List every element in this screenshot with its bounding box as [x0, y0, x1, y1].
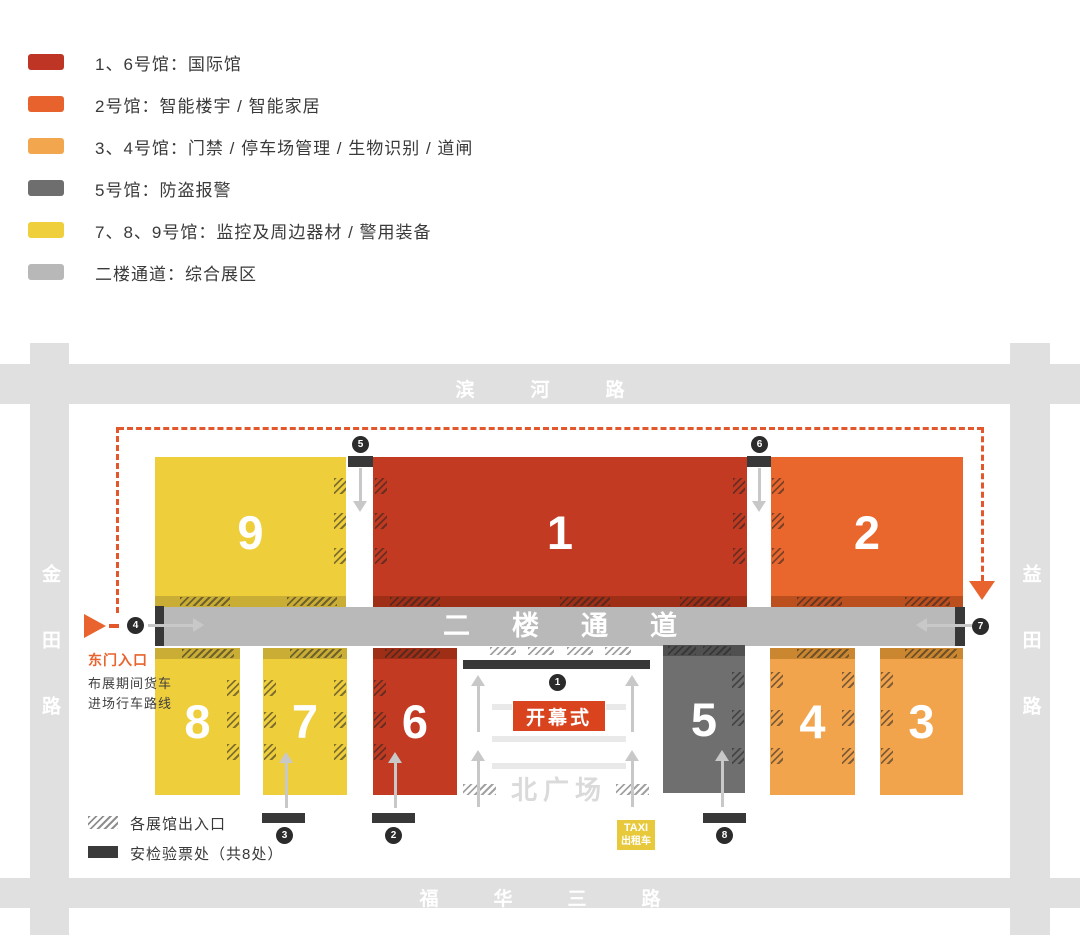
hall-entrance-hatch-mark: [680, 597, 730, 606]
hall-5-number: 5: [691, 696, 717, 743]
road-jintian-label: 金田路: [30, 343, 69, 935]
checkpoint-marker-5: 5: [352, 436, 369, 453]
hall-entrance-hatch-mark: [842, 710, 854, 726]
hall-entrance-hatch-mark: [227, 680, 239, 696]
hall-entrance-hatch-mark: [264, 712, 276, 728]
road-yitian-label: 益田路: [1010, 343, 1050, 935]
hall-entrance-hatch-mark: [905, 649, 957, 658]
checkpoint-marker-1: 1: [549, 674, 566, 691]
hall-entrance-hatch-mark: [374, 744, 386, 760]
second-floor-corridor: 二楼通道: [155, 607, 965, 646]
hall-entrance-hatch-mark: [375, 513, 387, 529]
legend-swatch: [28, 54, 64, 70]
hall-entrance-hatch-mark: [375, 478, 387, 494]
checkpoint-marker-4: 4: [127, 617, 144, 634]
plaza-line: [606, 704, 626, 710]
flow-arrow-down-icon: [353, 468, 367, 512]
security-checkpoint-bar-8: [703, 813, 746, 823]
hall-entrance-hatch-mark: [334, 478, 346, 494]
entrance-hatch-swatch: [88, 816, 118, 829]
checkpoint-marker-7: 7: [972, 618, 989, 635]
taxi-label-cn: 出租车: [621, 836, 651, 848]
hall-entrance-hatch-mark: [797, 597, 842, 606]
hall-entrance-hatch-mark: [528, 647, 554, 655]
flow-arrow-up-icon: [471, 675, 485, 732]
hall-entrance-hatch-mark: [182, 649, 234, 658]
hall-entrance-hatch-mark: [733, 548, 745, 564]
checkpoint-marker-6: 6: [751, 436, 768, 453]
hall-entrance-hatch-mark: [375, 548, 387, 564]
security-checkpoint-bar-3: [262, 813, 305, 823]
entrance-legend-label: 各展馆出入口: [130, 813, 226, 834]
hall-entrance-hatch-mark: [732, 710, 744, 726]
truck-route-left: [116, 427, 119, 613]
hall-entrance-hatch-mark: [334, 744, 346, 760]
legend-swatch: [28, 222, 64, 238]
hall-entrance-hatch-mark: [905, 597, 950, 606]
legend-label: 5号馆：防盗报警: [95, 176, 231, 201]
legend-swatch: [28, 180, 64, 196]
hall-entrance-hatch-mark: [334, 712, 346, 728]
road-jintian: 金田路: [30, 343, 69, 935]
legend-swatch: [28, 138, 64, 154]
truck-route-exit-arrow-icon: [969, 581, 995, 600]
hall-1-number: 1: [547, 509, 573, 556]
hall-entrance-hatch-mark: [771, 710, 783, 726]
hall-entrance-hatch-mark: [881, 710, 893, 726]
exhibition-map: 1、6号馆：国际馆 2号馆：智能楼宇 / 智能家居 3、4号馆：门禁 / 停车场…: [0, 0, 1080, 935]
security-checkpoint-bar-2: [372, 813, 415, 823]
legend-label: 7、8、9号馆：监控及周边器材 / 警用装备: [95, 218, 432, 243]
legend-row: 二楼通道：综合展区: [28, 262, 257, 282]
security-legend-label: 安检验票处（共8处）: [130, 843, 283, 864]
hall-entrance-hatch-mark: [287, 597, 337, 606]
truck-note-line2: 进场行车路线: [88, 693, 172, 712]
legend-row: 5号馆：防盗报警: [28, 178, 231, 198]
plaza-line: [492, 704, 512, 710]
road-yitian: 益田路: [1010, 343, 1050, 935]
legend-row: 3、4号馆：门禁 / 停车场管理 / 生物识别 / 道闸: [28, 136, 473, 156]
hall-9-number: 9: [237, 509, 263, 556]
opening-ceremony-stage: 开幕式: [513, 701, 605, 731]
hall-entrance-hatch-mark: [772, 513, 784, 529]
hall-entrance-hatch-mark: [772, 548, 784, 564]
legend-label: 3、4号馆：门禁 / 停车场管理 / 生物识别 / 道闸: [95, 134, 473, 159]
legend-swatch: [28, 264, 64, 280]
hall-4-number: 4: [799, 698, 825, 745]
truck-route-dash: [109, 624, 119, 628]
hall-entrance-hatch-mark: [334, 548, 346, 564]
road-fuhua3: 福华三路: [0, 878, 1080, 908]
hall-entrance-hatch-mark: [732, 672, 744, 688]
hall-entrance-hatch-mark: [227, 712, 239, 728]
road-binhe-label: 滨河路: [0, 375, 1080, 402]
legend-label: 2号馆：智能楼宇 / 智能家居: [95, 92, 321, 117]
hall-entrance-hatch-mark: [567, 647, 593, 655]
legend-label: 1、6号馆：国际馆: [95, 50, 242, 75]
hall-entrance-hatch-mark: [733, 478, 745, 494]
hall-entrance-hatch-mark: [881, 672, 893, 688]
truck-note-line1: 布展期间货车: [88, 673, 172, 692]
north-plaza-label: 北广场: [490, 770, 622, 807]
truck-route-right: [981, 427, 984, 581]
road-fuhua3-label: 福华三路: [0, 884, 1080, 911]
hall-entrance-hatch-mark: [560, 597, 610, 606]
hall-9: 9: [155, 457, 346, 607]
hall-entrance-hatch-mark: [490, 647, 516, 655]
hall-entrance-hatch-mark: [605, 647, 631, 655]
truck-route-top: [118, 427, 983, 430]
hall-entrance-hatch-mark: [334, 513, 346, 529]
hall-entrance-hatch-mark: [771, 748, 783, 764]
hall-entrance-hatch-mark: [797, 649, 849, 658]
hall-entrance-hatch-mark: [842, 672, 854, 688]
hall-entrance-hatch-mark: [881, 748, 893, 764]
flow-arrow-up-icon: [625, 675, 639, 732]
hall-2-number: 2: [854, 509, 880, 556]
truck-route-entry-arrow-icon: [84, 614, 106, 638]
legend-row: 2号馆：智能楼宇 / 智能家居: [28, 94, 321, 114]
taxi-stand: TAXI 出租车: [617, 820, 655, 850]
flow-arrow-down-icon: [752, 468, 766, 512]
hall-8-number: 8: [184, 698, 210, 745]
east-gate-label: 东门入口: [88, 650, 148, 670]
hall-7-number: 7: [292, 698, 318, 745]
flow-arrow-right-icon: [148, 618, 204, 632]
hall-entrance-hatch-mark: [374, 680, 386, 696]
security-bar-swatch: [88, 846, 118, 858]
checkpoint-marker-3: 3: [276, 827, 293, 844]
plaza-line: [492, 763, 626, 769]
checkpoint-marker-8: 8: [716, 827, 733, 844]
hall-entrance-hatch-mark: [374, 712, 386, 728]
checkpoint-marker-2: 2: [385, 827, 402, 844]
hall-entrance-hatch-mark: [772, 478, 784, 494]
legend-label: 二楼通道：综合展区: [95, 260, 257, 285]
legend-swatch: [28, 96, 64, 112]
hall-entrance-hatch-mark: [334, 680, 346, 696]
hall-1: 1: [373, 457, 747, 607]
legend-row: 7、8、9号馆：监控及周边器材 / 警用装备: [28, 220, 432, 240]
hall-entrance-hatch-mark: [385, 649, 440, 658]
security-checkpoint-bar-1: [463, 660, 650, 669]
hall-6-number: 6: [402, 698, 428, 745]
security-checkpoint-bar-5: [348, 456, 373, 467]
flow-arrow-up-icon: [279, 752, 293, 808]
legend-row: 1、6号馆：国际馆: [28, 52, 242, 72]
hall-entrance-hatch-mark: [227, 744, 239, 760]
hall-entrance-hatch-mark: [264, 680, 276, 696]
security-checkpoint-bar-6: [747, 456, 771, 467]
hall-entrance-hatch-mark: [842, 748, 854, 764]
hall-entrance-hatch-mark: [390, 597, 440, 606]
taxi-label-en: TAXI: [624, 822, 648, 835]
hall-entrance-hatch-mark: [668, 646, 696, 655]
hall-entrance-hatch-mark: [264, 744, 276, 760]
road-binhe: 滨河路: [0, 364, 1080, 404]
flow-arrow-up-icon: [471, 750, 485, 807]
hall-2: 2: [771, 457, 963, 607]
hall-entrance-hatch-mark: [180, 597, 230, 606]
hall-entrance-hatch-mark: [733, 513, 745, 529]
hall-entrance-hatch-mark: [732, 748, 744, 764]
plaza-line: [492, 736, 626, 742]
flow-arrow-left-icon: [916, 618, 972, 632]
hall-3-number: 3: [908, 698, 934, 745]
flow-arrow-up-icon: [625, 750, 639, 807]
hall-entrance-hatch-mark: [771, 672, 783, 688]
hall-entrance-hatch-mark: [290, 649, 342, 658]
hall-entrance-hatch-mark: [703, 646, 731, 655]
flow-arrow-up-icon: [715, 750, 729, 807]
corridor-label: 二楼通道: [401, 613, 719, 640]
flow-arrow-up-icon: [388, 752, 402, 808]
